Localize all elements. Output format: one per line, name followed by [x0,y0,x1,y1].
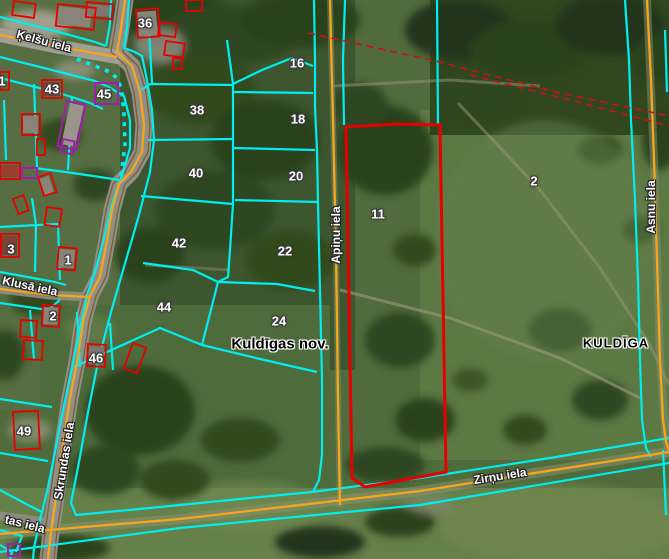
map-viewport[interactable]: 36164345381840201124222314422446491 Ķelš… [0,0,669,559]
satellite-map-canvas [0,0,669,559]
